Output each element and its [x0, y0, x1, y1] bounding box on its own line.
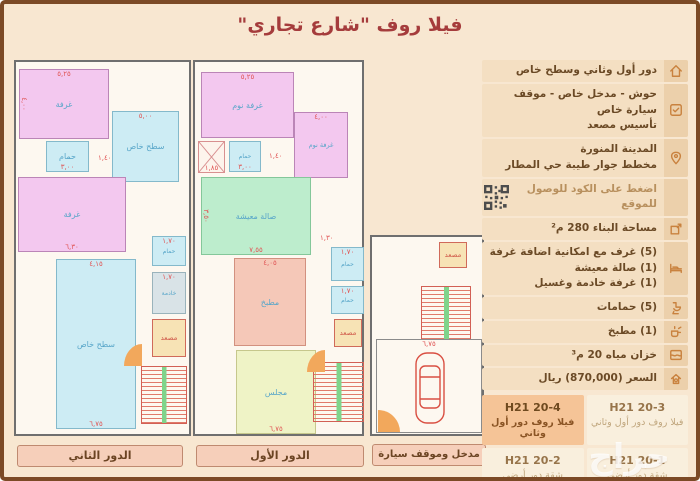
- rooms-line2: (1) صالة معيشة: [489, 261, 657, 277]
- location-city: المدينة المنورة: [489, 142, 657, 158]
- room-private-roof: ٤,١٥ ٦,٧٥ سطح خاص: [56, 259, 136, 429]
- room-bathroom: ١,٧٠ حمام: [331, 247, 364, 281]
- area-icon: [664, 218, 688, 240]
- caption-entrance-parking: مدخل وموقف سيارة: [372, 444, 486, 466]
- car-icon: [413, 350, 447, 426]
- row-qr: اضغط على الكود للوصول للموقع: [482, 179, 688, 217]
- elevator: مصعد: [439, 242, 467, 268]
- light-shaft: ١,٨٥: [198, 141, 225, 173]
- room-kitchen: ٤,٠٥ مطبخ: [234, 258, 306, 346]
- checkbox-icon: [664, 84, 688, 137]
- room-bathroom: ١,٧٠ حمام: [331, 286, 364, 314]
- elevator: مصعد: [334, 319, 362, 347]
- room-living: ٧,٥٥ ٣,٥٠ صالة معيشة: [201, 177, 311, 255]
- room-maid: ١,٧٠ خادمة: [152, 272, 186, 314]
- row-rooms: (5) غرف مع امكانية اضافة غرفة (1) صالة م…: [482, 242, 688, 295]
- room-private-roof: ٥,٠٠ سطح خاص: [112, 111, 179, 182]
- room-bedroom: ٥,٢٥ ٤,٠٠ غرفة: [19, 69, 109, 139]
- toilet-icon: [664, 297, 688, 319]
- row-location: المدينة المنورة مخطط جوار طيبة حي المطار: [482, 139, 688, 177]
- listing-flyer: فيلا روف "شارع تجاري" ٥,٢٥ ٤,٠٠ غرفة ٣,٠…: [0, 0, 700, 481]
- row-price: السعر (870,000) ريال: [482, 368, 688, 390]
- page-title: فيلا روف "شارع تجاري": [4, 14, 696, 36]
- spacer: [664, 179, 688, 217]
- room-bedroom: ٤,٠٠ غرفة نوم: [294, 112, 348, 178]
- row-water-tank: خزان مياه 20 م³: [482, 345, 688, 367]
- staircase: [141, 366, 187, 424]
- location-district: مخطط جوار طيبة حي المطار: [489, 158, 657, 174]
- haraj-watermark: حراج: [588, 437, 670, 477]
- unit-tab-h21-20-2[interactable]: H21 20-2 شقة دور أرضي: [482, 448, 584, 481]
- caption-first-floor: الدور الأول: [196, 445, 364, 467]
- row-bathrooms: (5) حمامات: [482, 297, 688, 319]
- row-area: مساحة البناء 280 م²: [482, 218, 688, 240]
- room-majlis: ٦,٧٥ مجلس: [236, 350, 316, 434]
- row-floors: دور أول وثاني وسطح خاص: [482, 60, 688, 82]
- row-features: حوش - مدخل خاص - موقف سيارة خاص تأسيس مص…: [482, 84, 688, 137]
- water-tank-icon: [664, 345, 688, 367]
- room-bedroom: ٦,٣٠ غرفة: [18, 177, 126, 252]
- parking-spot: ٦,٧٥: [376, 339, 482, 433]
- room-bathroom: ٣,٠٠ حمام: [229, 141, 261, 172]
- room-bedroom: ٥,٢٥ غرفة نوم: [201, 72, 294, 138]
- features-line2: تأسيس مصعد: [489, 118, 657, 134]
- staircase: [421, 286, 471, 346]
- qr-code[interactable]: [484, 185, 509, 210]
- price-icon: [664, 368, 688, 390]
- floorplan-second-floor: ٥,٢٥ ٤,٠٠ غرفة ٣,٠٠ حمام ٥,٠٠ سطح خاص ٦,…: [14, 60, 191, 436]
- row-kitchen: (1) مطبخ: [482, 321, 688, 343]
- floorplan-entrance-parking: مصعد ٦,٧٥: [370, 235, 484, 436]
- unit-tab-h21-20-4[interactable]: H21 20-4 فيلا روف دور أول وثاني: [482, 395, 584, 445]
- bed-icon: [664, 242, 688, 295]
- room-bathroom: ٣,٠٠ حمام: [46, 141, 89, 172]
- door-arc: [378, 410, 400, 432]
- home-icon: [664, 60, 688, 82]
- location-pin-icon: [664, 139, 688, 177]
- caption-second-floor: الدور الثاني: [17, 445, 183, 467]
- kitchen-icon: [664, 321, 688, 343]
- features-line1: حوش - مدخل خاص - موقف سيارة خاص: [489, 87, 657, 119]
- floorplan-first-floor: ٥,٢٥ غرفة نوم ١,٨٥ ٣,٠٠ حمام ٤,٠٠ غرفة ن…: [193, 60, 364, 436]
- details-sidebar: دور أول وثاني وسطح خاص حوش - مدخل خاص - …: [482, 60, 688, 481]
- elevator: مصعد: [152, 319, 186, 357]
- room-bathroom: ١,٧٠ حمام: [152, 236, 186, 266]
- rooms-line1: (5) غرف مع امكانية اضافة غرفة: [489, 245, 657, 261]
- rooms-line3: (1) غرفة خادمة وغسيل: [489, 276, 657, 292]
